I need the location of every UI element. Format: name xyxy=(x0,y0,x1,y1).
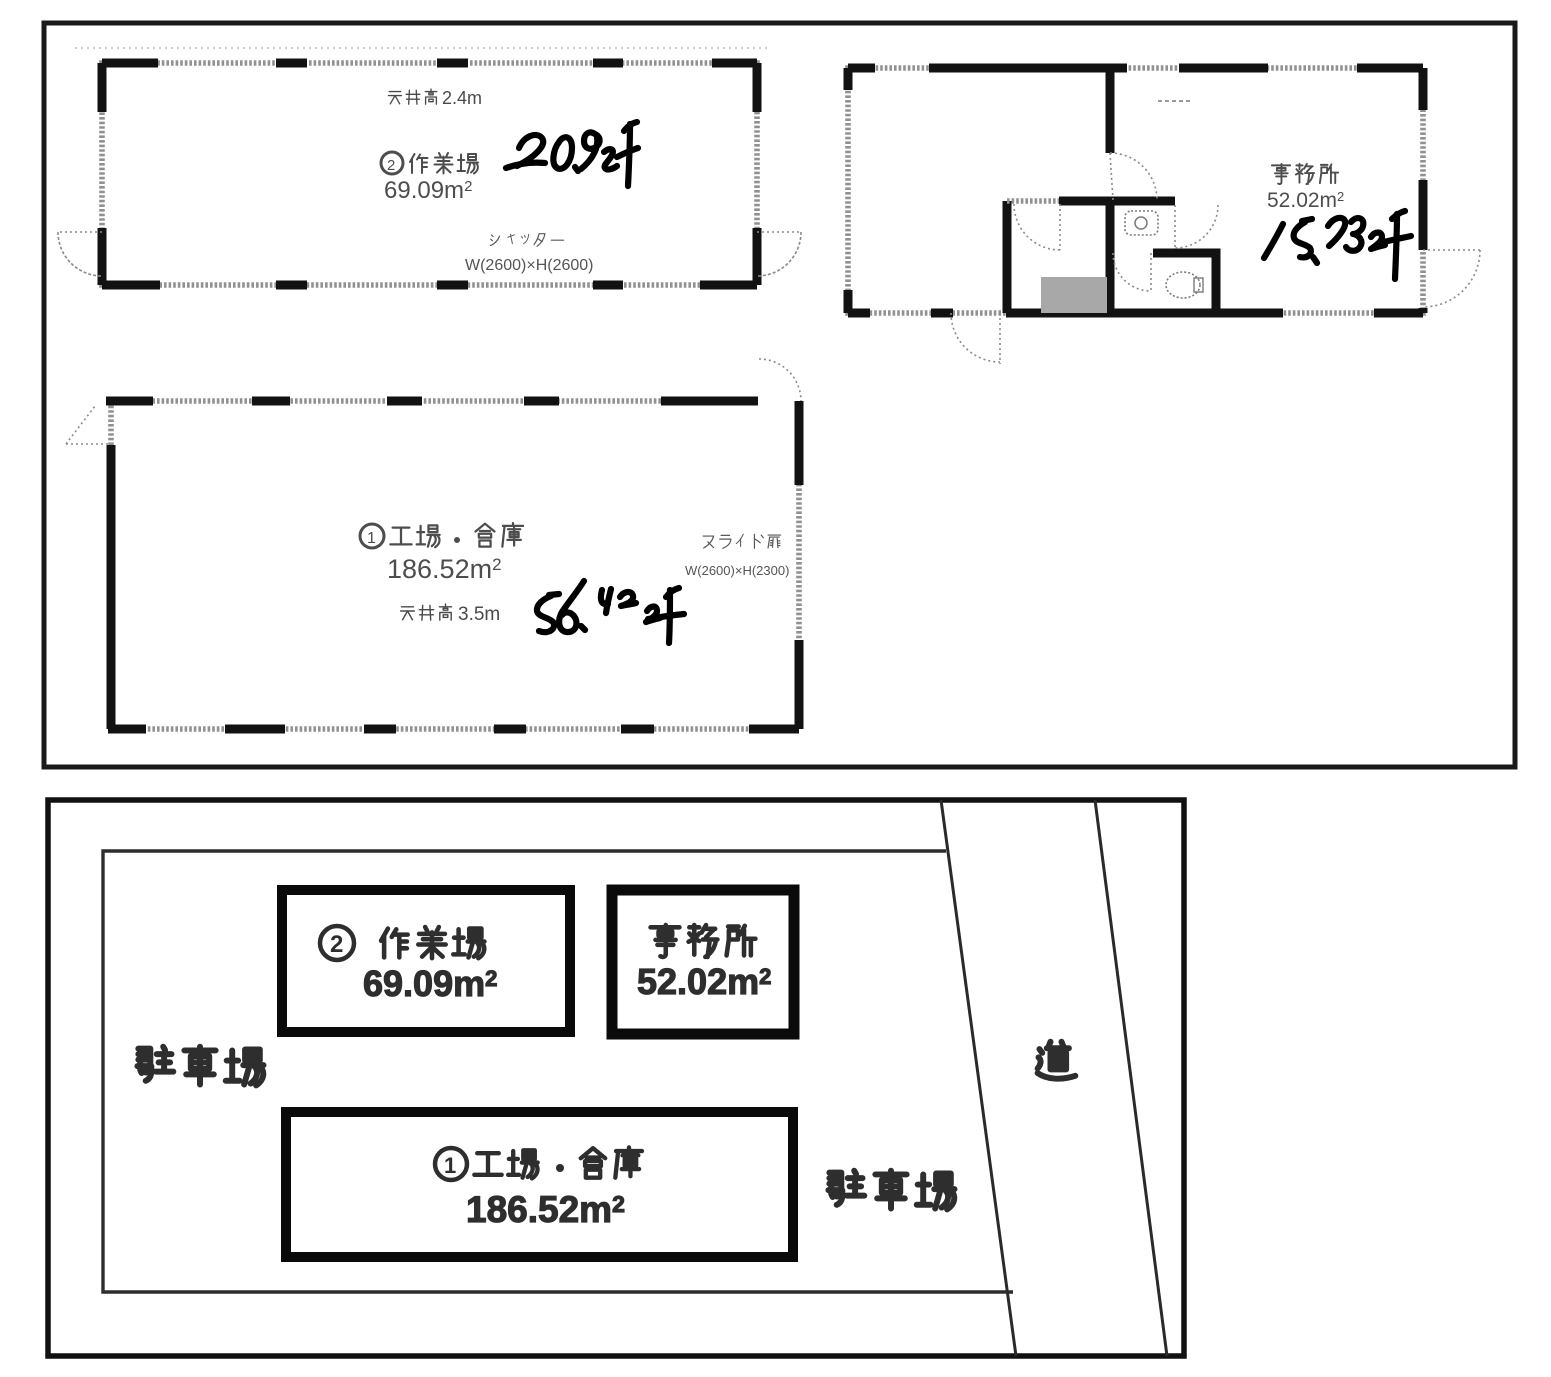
svg-text:W(2600)×H(2600): W(2600)×H(2600) xyxy=(465,257,594,274)
svg-text:52.02m2: 52.02m2 xyxy=(1267,189,1344,212)
svg-text:W(2600)×H(2300): W(2600)×H(2300) xyxy=(685,563,789,578)
svg-text:2.4m: 2.4m xyxy=(442,88,482,108)
svg-text:2: 2 xyxy=(387,157,395,174)
svg-text:69.09m2: 69.09m2 xyxy=(363,963,497,1004)
svg-text:2: 2 xyxy=(330,931,343,958)
svg-text:69.09m2: 69.09m2 xyxy=(384,177,472,204)
svg-text:1: 1 xyxy=(367,530,376,547)
svg-text:1: 1 xyxy=(444,1153,456,1178)
svg-text:52.02m2: 52.02m2 xyxy=(637,961,771,1002)
svg-text:186.52m2: 186.52m2 xyxy=(466,1189,625,1230)
svg-text:186.52m2: 186.52m2 xyxy=(387,554,502,584)
svg-text:3.5m: 3.5m xyxy=(458,604,500,625)
